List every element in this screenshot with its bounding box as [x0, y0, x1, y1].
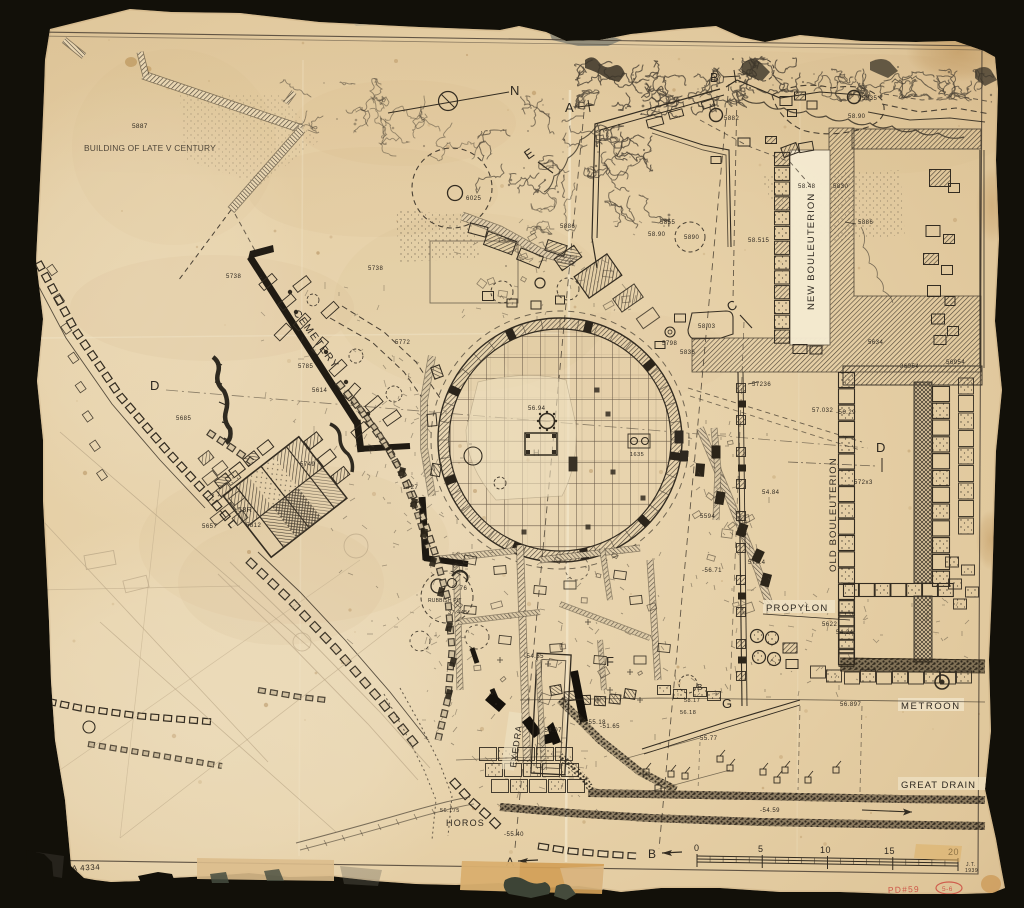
svg-text:5886: 5886 — [858, 220, 874, 226]
svg-text:58.90: 58.90 — [648, 232, 666, 238]
svg-text:-54.59: -54.59 — [760, 808, 780, 814]
svg-text:A: A — [565, 100, 574, 115]
svg-text:570.4: 570.4 — [748, 560, 766, 566]
svg-text:1635: 1635 — [630, 452, 644, 458]
svg-text:5882: 5882 — [724, 116, 740, 122]
svg-text:5855: 5855 — [660, 220, 676, 226]
svg-text:1939: 1939 — [965, 868, 978, 874]
svg-text:5887: 5887 — [132, 123, 148, 130]
svg-text:F: F — [606, 654, 614, 669]
svg-text:B: B — [648, 847, 657, 861]
svg-text:54.24: 54.24 — [836, 630, 854, 636]
svg-text:5836: 5836 — [680, 350, 696, 356]
svg-text:-56.71: -56.71 — [702, 568, 722, 574]
svg-text:-54.35: -54.35 — [524, 654, 544, 660]
svg-text:6025: 6025 — [466, 196, 482, 202]
svg-text:5594: 5594 — [700, 514, 716, 520]
svg-text:N: N — [510, 83, 519, 98]
svg-text:572x3: 572x3 — [854, 480, 873, 486]
svg-text:5: 5 — [758, 844, 764, 854]
svg-text:5749: 5749 — [300, 462, 316, 468]
svg-text:5785: 5785 — [298, 364, 314, 370]
svg-text:B: B — [710, 70, 719, 85]
svg-text:10: 10 — [820, 845, 831, 855]
svg-text:GREAT DRAIN: GREAT DRAIN — [901, 780, 976, 791]
svg-text:5738: 5738 — [368, 266, 384, 272]
svg-text:5614: 5614 — [312, 388, 328, 394]
svg-text:D: D — [150, 378, 160, 393]
svg-text:5685: 5685 — [176, 416, 192, 422]
svg-text:5772: 5772 — [395, 340, 411, 346]
svg-text:5812: 5812 — [246, 523, 262, 529]
svg-text:56.94: 56.94 — [528, 406, 546, 412]
svg-text:5798: 5798 — [662, 341, 678, 347]
svg-text:58.90: 58.90 — [848, 114, 866, 120]
svg-text:56.18: 56.18 — [680, 710, 696, 716]
svg-text:54.84: 54.84 — [762, 490, 780, 496]
svg-text:5890: 5890 — [684, 235, 700, 241]
svg-text:58.03: 58.03 — [698, 324, 716, 330]
svg-text:5622: 5622 — [822, 622, 838, 628]
svg-text:OLD BOULEUTERION: OLD BOULEUTERION — [828, 457, 839, 572]
svg-text:-55.40: -55.40 — [504, 832, 524, 838]
svg-text:BUILDING OF LATE V CENTURY: BUILDING OF LATE V CENTURY — [84, 143, 216, 153]
svg-text:PD#59: PD#59 — [888, 884, 920, 895]
svg-text:METROON: METROON — [901, 701, 961, 712]
svg-text:D: D — [876, 440, 886, 455]
svg-text:5830: 5830 — [833, 184, 849, 190]
svg-text:5886: 5886 — [560, 224, 576, 230]
svg-text:58.48: 58.48 — [798, 184, 816, 190]
svg-text:5-6: 5-6 — [942, 886, 953, 893]
svg-text:G: G — [722, 696, 733, 711]
svg-text:0: 0 — [694, 843, 700, 853]
svg-text:-54.97: -54.97 — [542, 728, 562, 734]
svg-text:15: 15 — [884, 846, 895, 856]
svg-text:NEW BOULEUTERION: NEW BOULEUTERION — [806, 193, 817, 310]
svg-text:5738: 5738 — [226, 274, 242, 280]
svg-text:58.515: 58.515 — [748, 238, 770, 244]
svg-text:PROPYLON: PROPYLON — [766, 603, 828, 614]
svg-text:5835: 5835 — [862, 96, 878, 102]
svg-text:55.77: 55.77 — [700, 736, 718, 742]
svg-text:56.897: 56.897 — [840, 702, 862, 708]
svg-text:57.032: 57.032 — [812, 408, 834, 414]
svg-text:56954: 56954 — [946, 360, 965, 366]
svg-text:HOROS: HOROS — [446, 818, 485, 828]
svg-text:5634: 5634 — [868, 340, 884, 346]
